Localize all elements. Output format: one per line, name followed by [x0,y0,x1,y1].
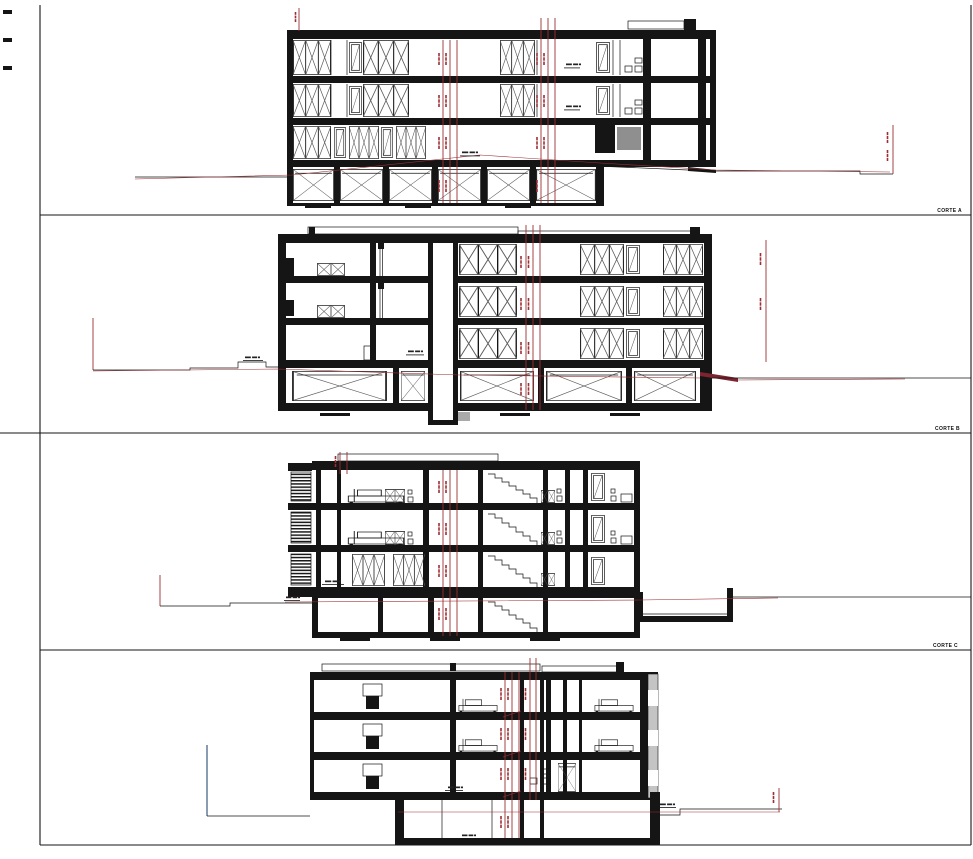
section-d-drawing [207,658,782,845]
dimension-lines [520,225,766,410]
roof-and-slabs [312,454,640,641]
louver-facade [288,463,314,597]
drawing-sheet: CORTE A [0,0,973,859]
section-b-drawing: CORTE B [93,225,971,432]
section-c-label: CORTE C [933,643,958,649]
sheet-edge-marks [3,10,12,70]
upper-floor-windows [293,40,642,159]
basement-level [278,360,712,416]
staircase [488,474,537,632]
section-a-label: CORTE A [937,208,962,214]
roof-and-slabs [310,662,658,800]
facade-windows [363,684,382,789]
section-a-drawing: CORTE A [135,8,962,214]
section-c-drawing: CORTE C [160,452,971,649]
section-b-label: CORTE B [935,426,960,432]
balcony-edge [648,674,658,798]
floor-interiors [317,243,703,360]
sections-drawing: CORTE A [0,0,973,859]
sunken-court [637,588,733,622]
elevator-shaft [428,234,470,425]
